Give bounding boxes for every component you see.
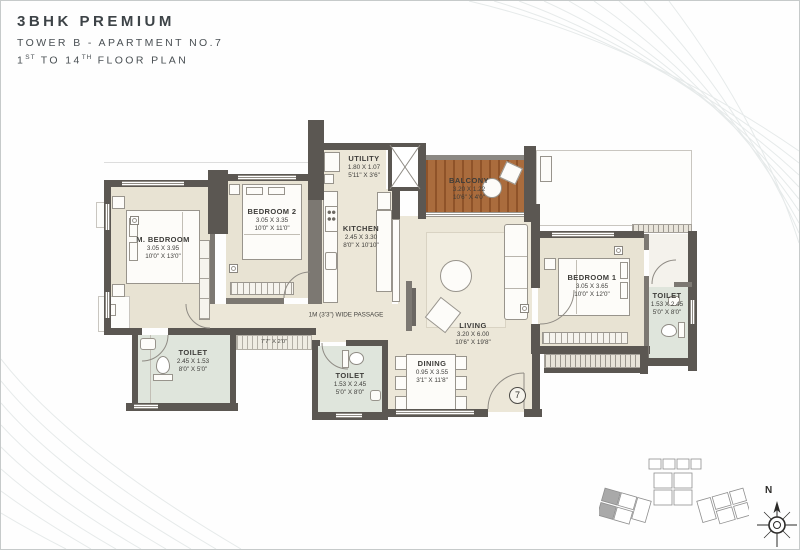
apartment-number-badge: 7 <box>509 387 526 404</box>
door-swings <box>96 106 716 446</box>
page-background: 3BHK PREMIUM TOWER B - APARTMENT NO.7 1S… <box>0 0 800 550</box>
room-label-utility: UTILITY1.80 X 1.075'11" X 3'6" <box>348 154 380 180</box>
room-label-toilet-common: TOILET1.53 X 2.455'0" X 8'0" <box>334 371 366 397</box>
room-label-kitchen: KITCHEN2.45 X 3.308'0" X 10'10" <box>343 224 379 250</box>
ledge-dimension-label: 7'7" X 2'0" <box>261 339 287 345</box>
plan-title: 3BHK PREMIUM <box>17 13 223 30</box>
compass-icon <box>753 499 800 551</box>
compass-north-label: N <box>765 485 773 496</box>
room-label-m-bedroom: M. BEDROOM3.05 X 3.9510'0" X 13'0" <box>136 235 190 261</box>
room-label-dining: DINING0.95 X 3.553'1" X 11'8" <box>416 359 448 385</box>
floor-plan: M. BEDROOM3.05 X 3.9510'0" X 13'0" BEDRO… <box>96 106 716 446</box>
room-label-balcony: BALCONY3.20 X 1.2210'6" X 4'0" <box>449 176 489 202</box>
title-block: 3BHK PREMIUM TOWER B - APARTMENT NO.7 1S… <box>17 13 223 67</box>
room-label-bedroom2: BEDROOM 23.05 X 3.3510'0" X 11'0" <box>247 207 296 233</box>
room-label-toilet-master: TOILET2.45 X 1.538'0" X 5'0" <box>177 348 209 374</box>
key-plan <box>599 451 749 546</box>
room-label-bedroom1: BEDROOM 13.05 X 3.6510'0" X 12'0" <box>567 273 616 299</box>
plan-floor-range: 1ST TO 14TH FLOOR PLAN <box>17 54 223 67</box>
room-label-living: LIVING3.20 X 6.0010'6" X 19'8" <box>455 321 491 347</box>
room-label-toilet-bedroom1: TOILET1.53 X 2.455'0" X 8'0" <box>651 291 683 317</box>
passage-label: 1M (3'3") WIDE PASSAGE <box>309 312 384 319</box>
plan-subtitle: TOWER B - APARTMENT NO.7 <box>17 37 223 49</box>
